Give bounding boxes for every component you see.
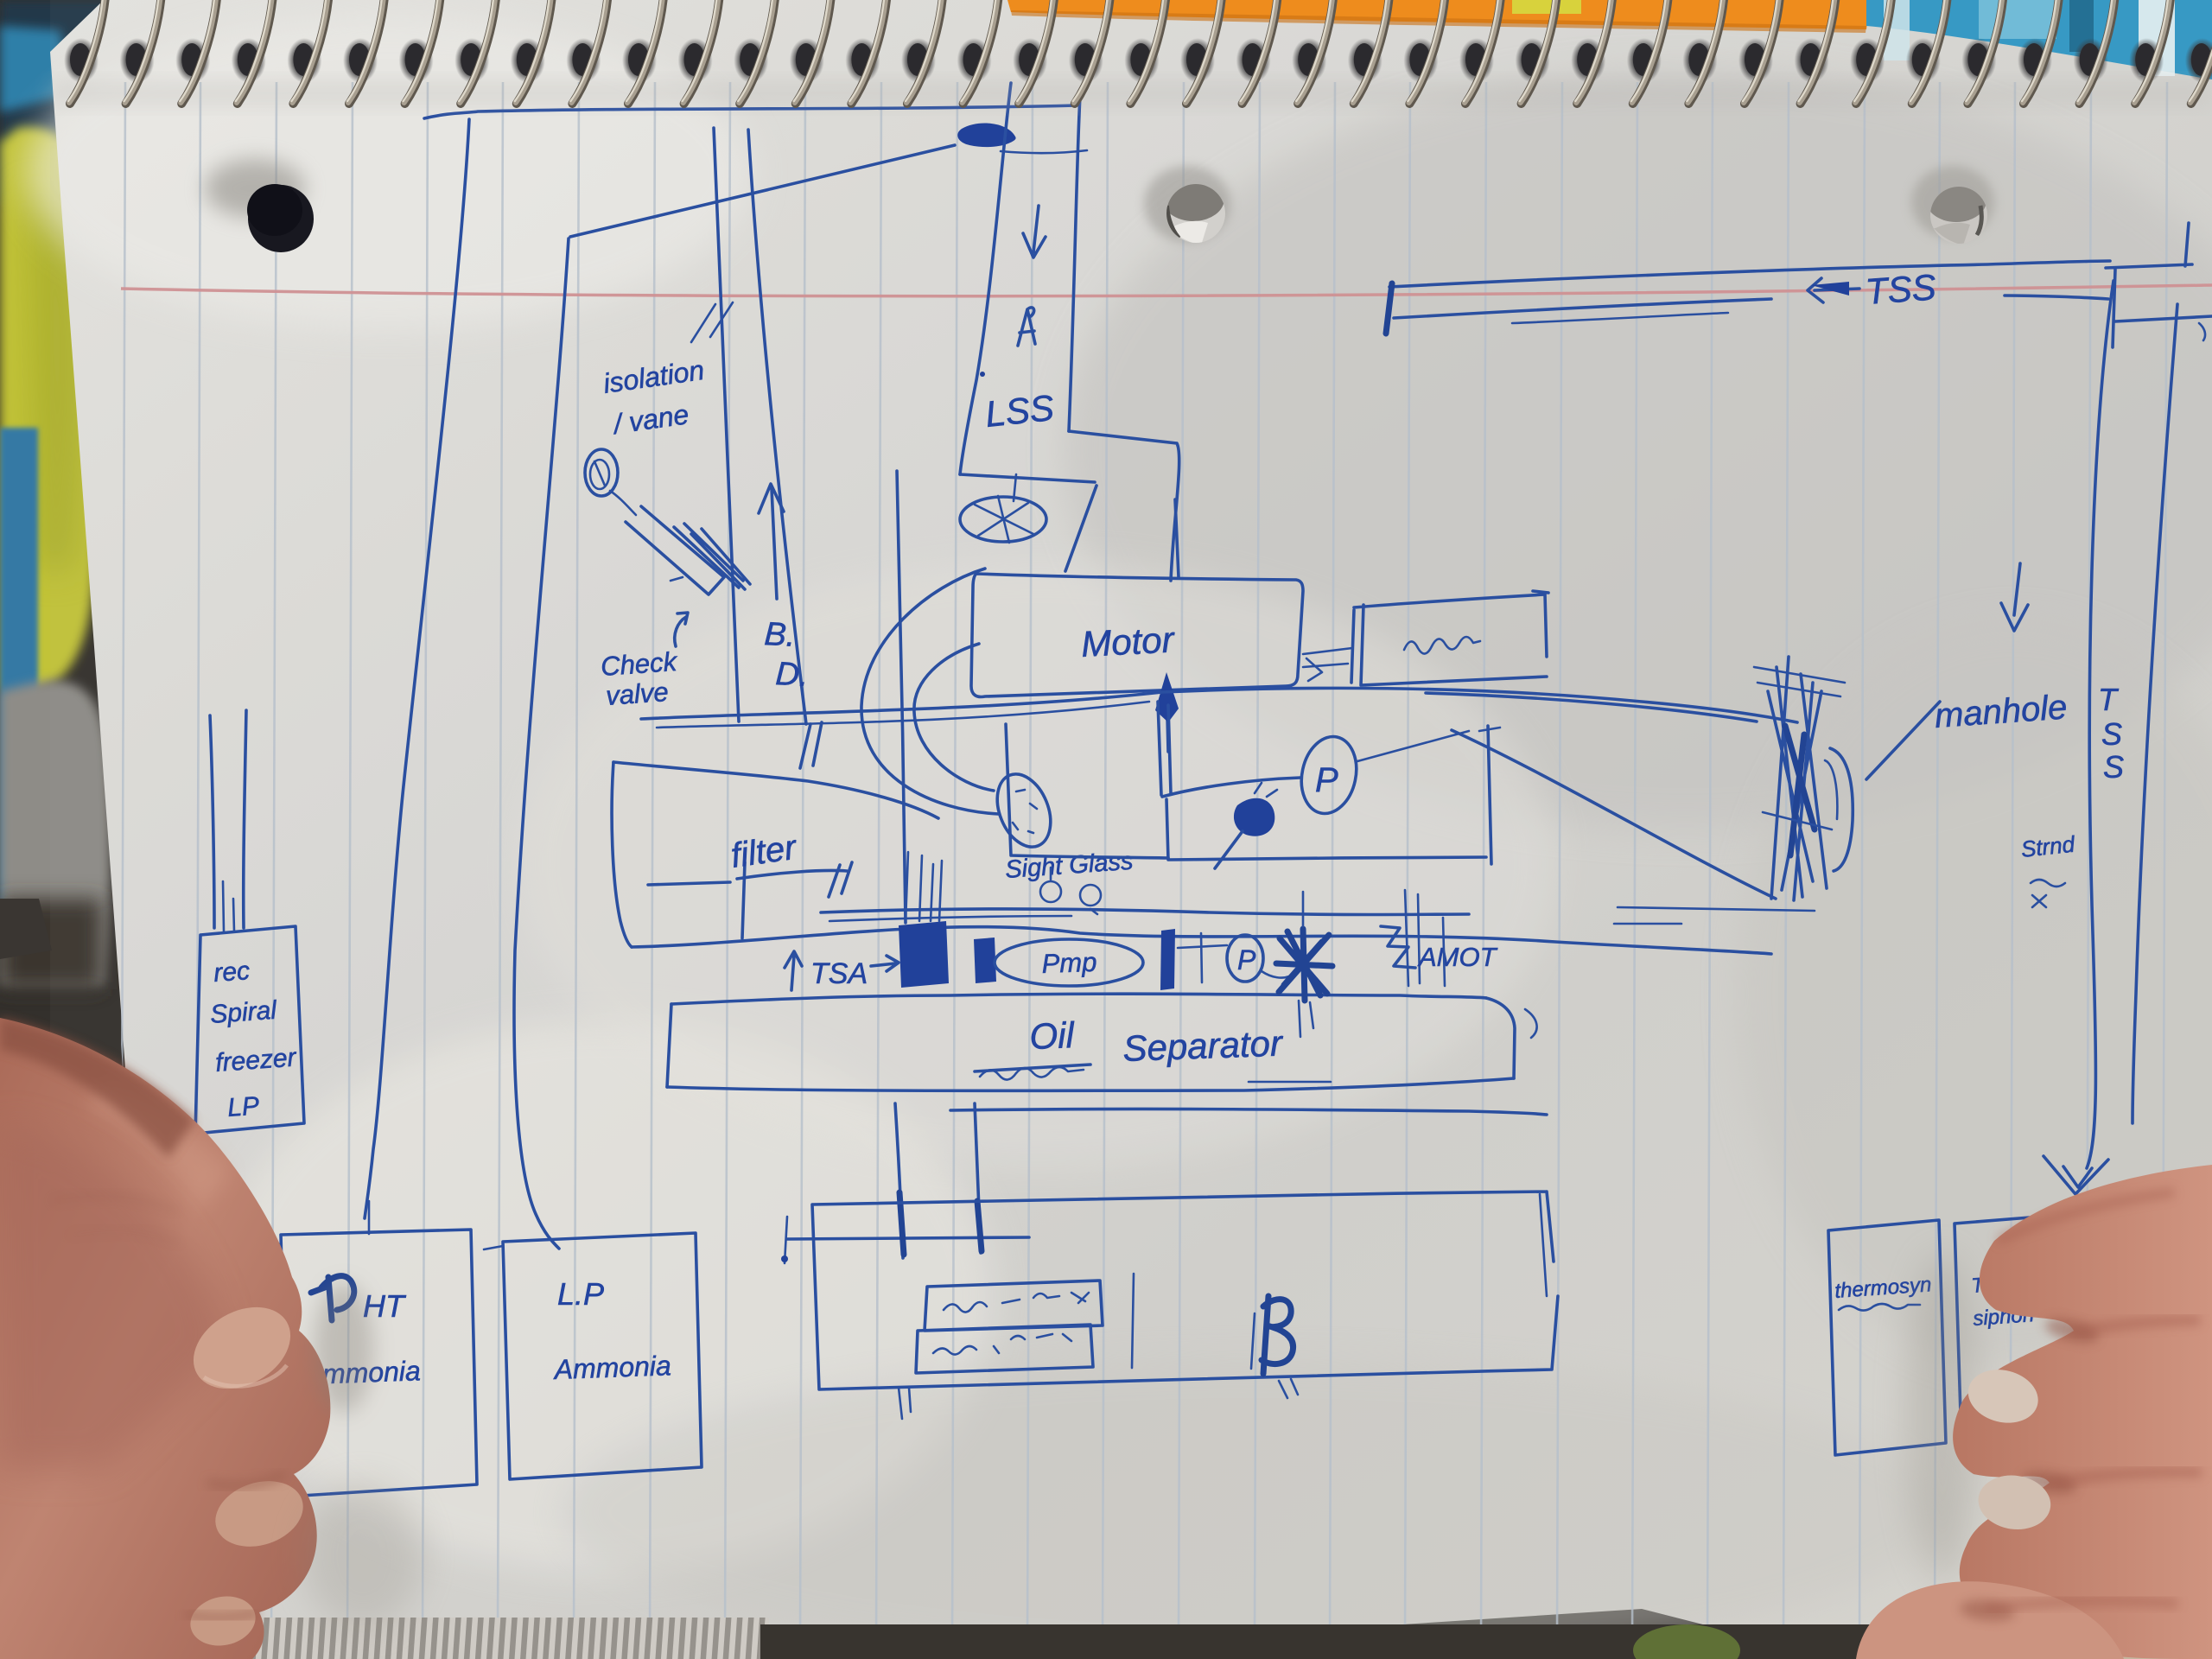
svg-text:P: P xyxy=(1237,944,1256,976)
svg-text:AMOT: AMOT xyxy=(1417,942,1498,972)
svg-text:P: P xyxy=(1315,761,1338,799)
svg-text:Spiral: Spiral xyxy=(209,996,278,1029)
svg-text:LSS: LSS xyxy=(983,387,1056,435)
svg-text:LP: LP xyxy=(226,1092,260,1122)
svg-text:Motor: Motor xyxy=(1080,619,1177,664)
svg-text:Oil: Oil xyxy=(1029,1014,1077,1057)
svg-text:S: S xyxy=(2101,716,2122,752)
svg-text:B.: B. xyxy=(764,616,797,654)
svg-text:Ammonia: Ammonia xyxy=(552,1350,671,1385)
svg-text:freezer: freezer xyxy=(214,1043,297,1077)
svg-text:valve: valve xyxy=(605,677,670,711)
svg-text:TSS: TSS xyxy=(1864,266,1937,312)
svg-text:L.P: L.P xyxy=(557,1276,604,1312)
svg-text:Separator: Separator xyxy=(1122,1023,1285,1069)
svg-text:rec: rec xyxy=(213,957,251,988)
svg-text:D.: D. xyxy=(775,656,810,694)
svg-text:Pmp: Pmp xyxy=(1041,947,1097,979)
svg-text:TSA: TSA xyxy=(810,957,868,990)
svg-text:T: T xyxy=(2098,682,2120,717)
svg-text:S: S xyxy=(2103,749,2124,785)
